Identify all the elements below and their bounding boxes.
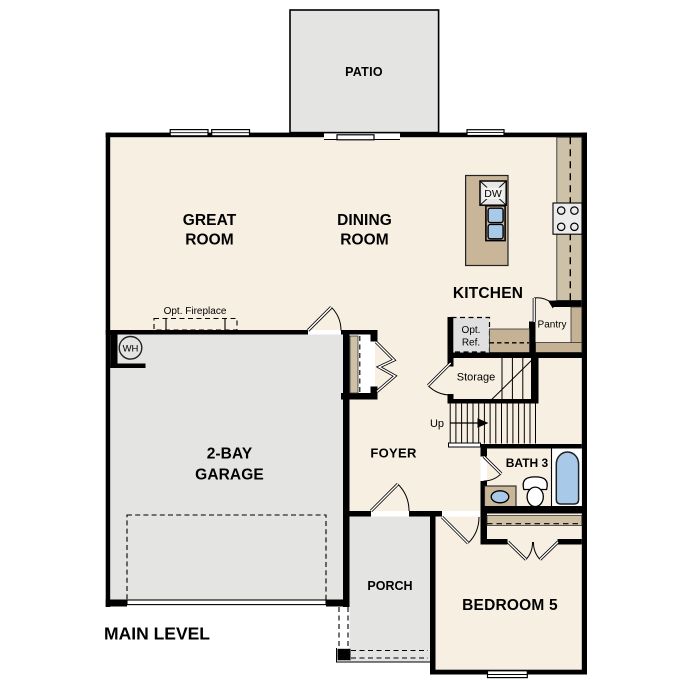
svg-text:KITCHEN: KITCHEN [453, 285, 523, 302]
svg-text:DW: DW [484, 188, 502, 200]
svg-text:Up: Up [430, 418, 444, 430]
svg-text:ROOM: ROOM [185, 231, 234, 248]
svg-text:Storage: Storage [457, 372, 496, 384]
svg-text:Ref.: Ref. [462, 338, 480, 349]
svg-text:PATIO: PATIO [345, 65, 383, 79]
svg-text:Opt. Fireplace: Opt. Fireplace [164, 306, 227, 317]
svg-text:2-BAY: 2-BAY [207, 446, 253, 463]
svg-text:BATH 3: BATH 3 [506, 456, 549, 470]
svg-text:FOYER: FOYER [370, 446, 417, 461]
svg-text:ROOM: ROOM [340, 231, 389, 248]
svg-text:BEDROOM 5: BEDROOM 5 [462, 597, 558, 614]
svg-text:DINING: DINING [337, 212, 392, 229]
svg-text:PORCH: PORCH [367, 579, 412, 593]
svg-text:MAIN LEVEL: MAIN LEVEL [104, 624, 210, 644]
svg-text:WH: WH [123, 343, 139, 354]
svg-text:GREAT: GREAT [183, 212, 237, 229]
svg-text:Pantry: Pantry [538, 320, 567, 331]
svg-text:GARAGE: GARAGE [195, 467, 264, 484]
svg-text:Opt.: Opt. [462, 325, 481, 336]
